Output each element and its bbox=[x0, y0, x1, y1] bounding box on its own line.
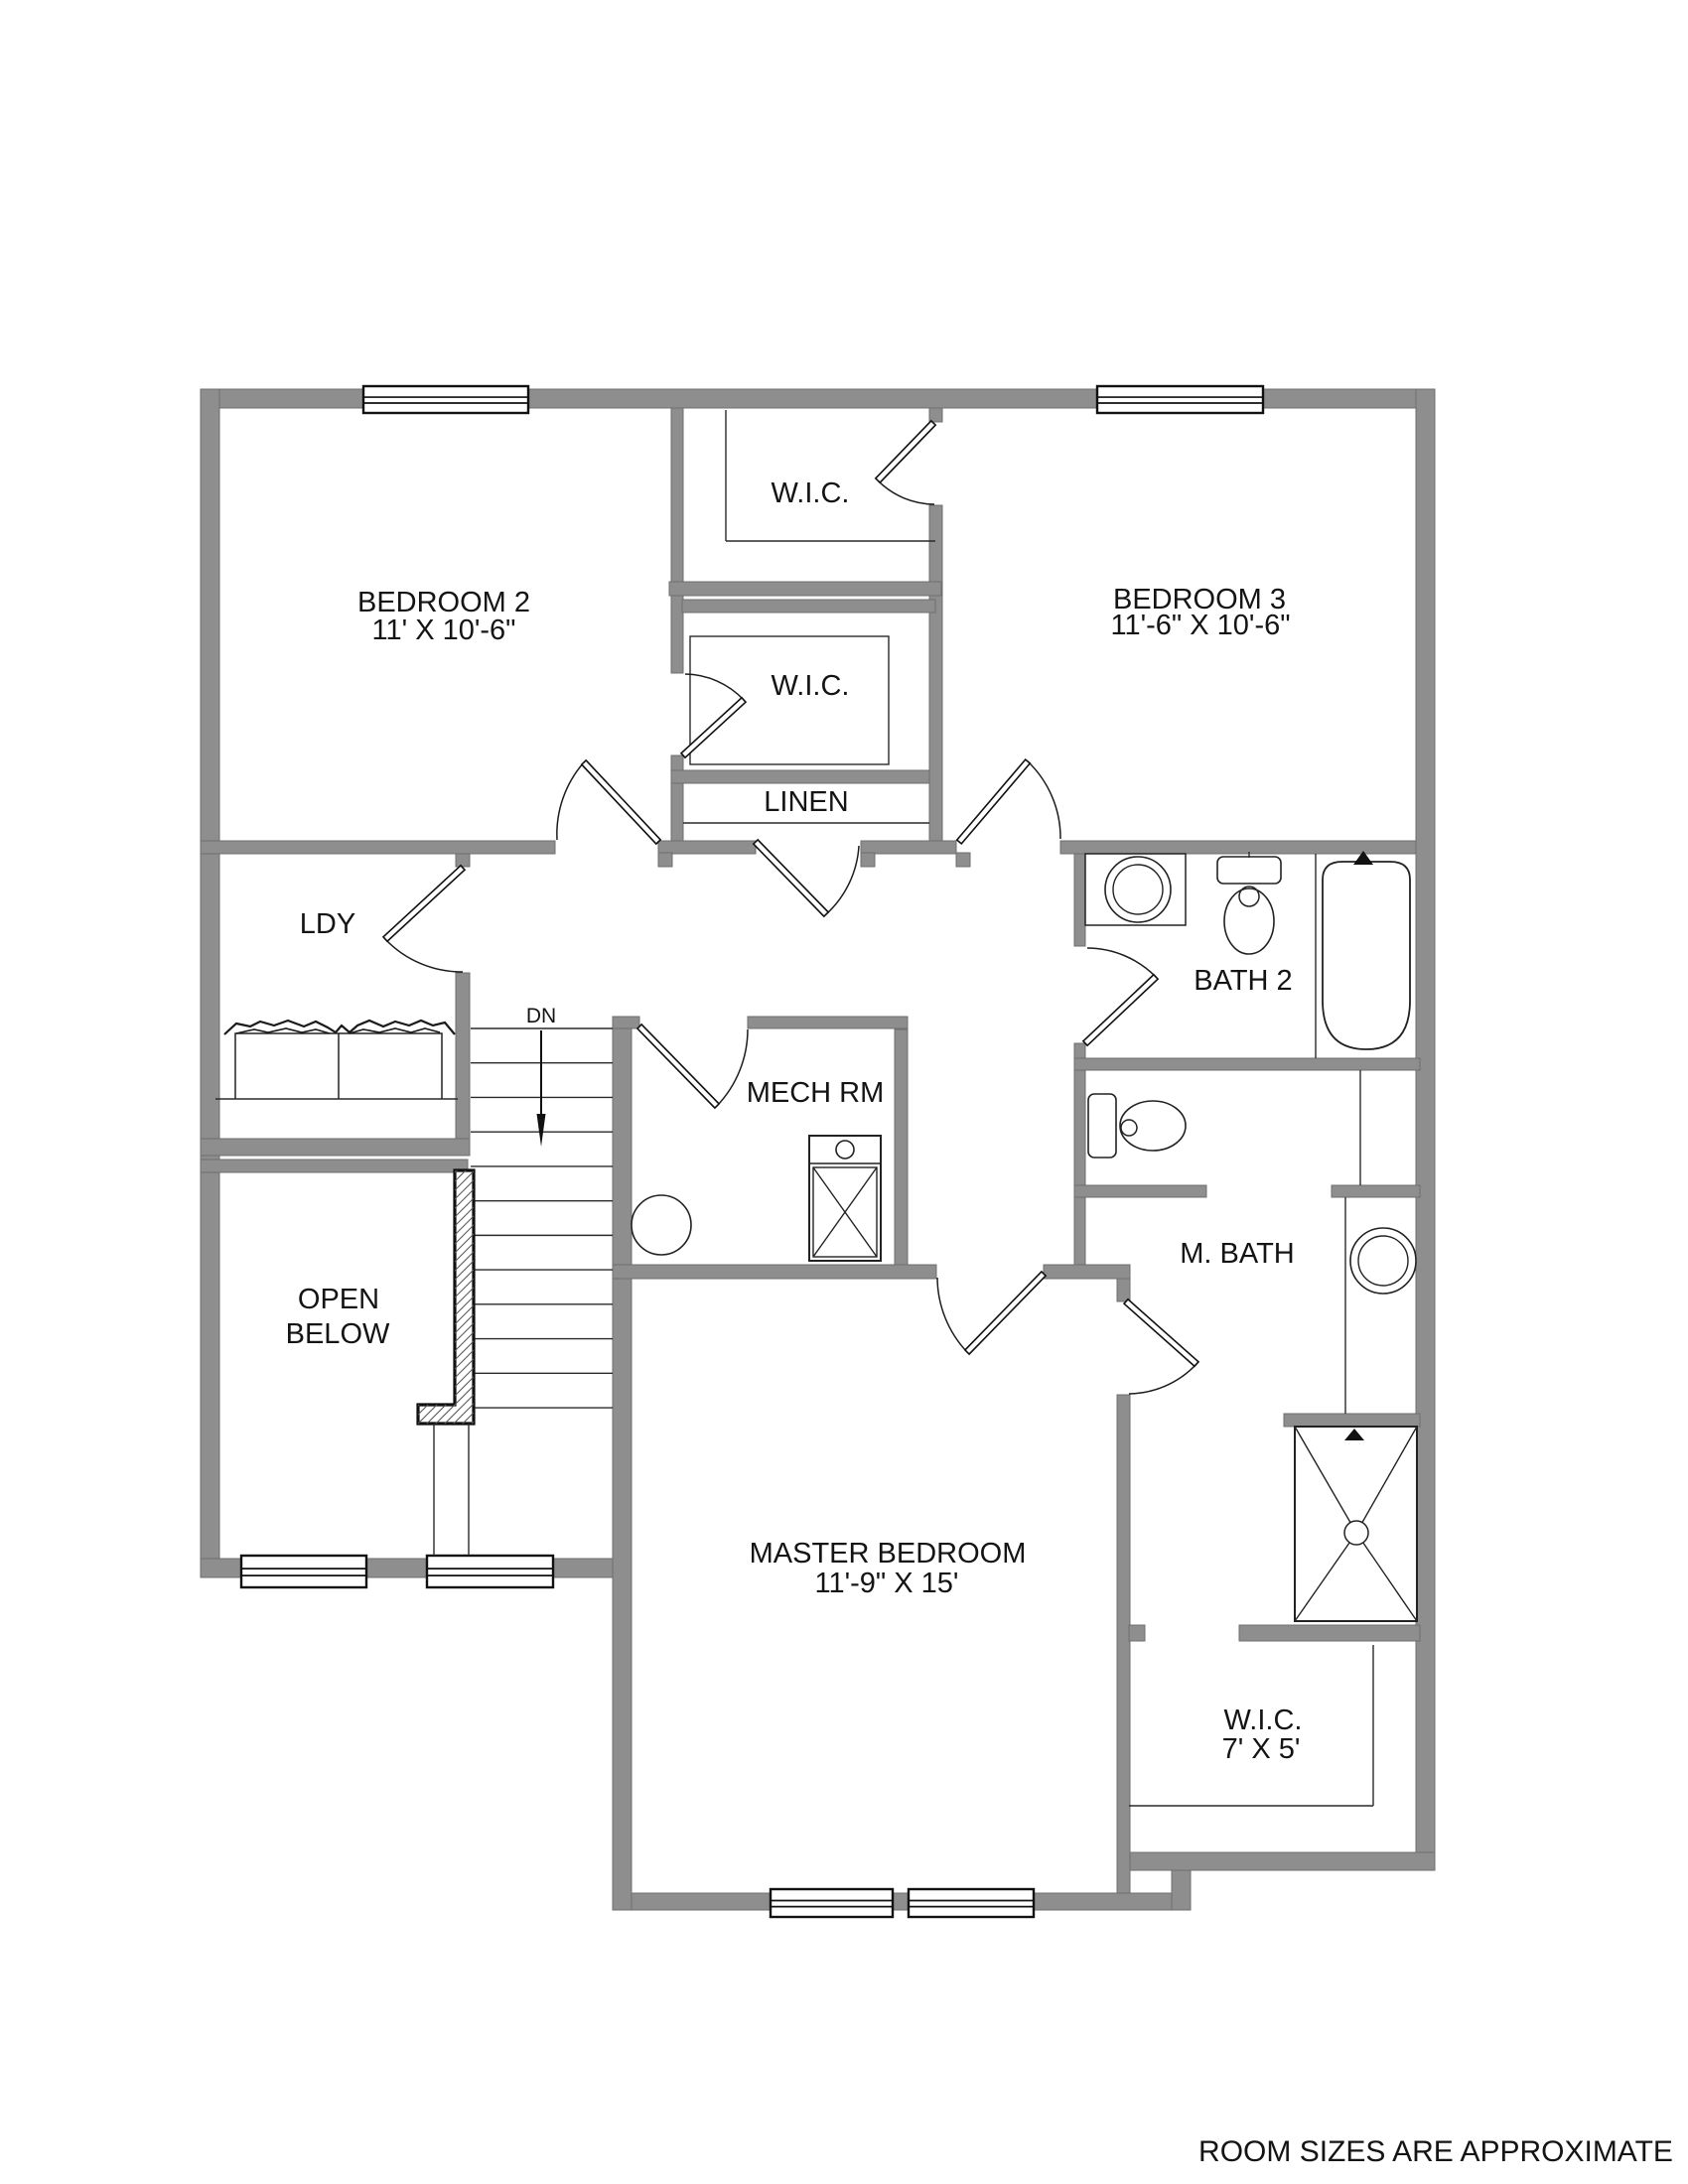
svg-text:BATH 2: BATH 2 bbox=[1194, 965, 1292, 997]
svg-text:11'-9" X 15': 11'-9" X 15' bbox=[815, 1568, 959, 1599]
svg-text:DN: DN bbox=[526, 1005, 556, 1027]
svg-text:W.I.C.: W.I.C. bbox=[772, 670, 850, 702]
svg-text:W.I.C.: W.I.C. bbox=[1224, 1705, 1303, 1736]
svg-text:7' X 5': 7' X 5' bbox=[1222, 1733, 1301, 1765]
svg-text:11'-6" X 10'-6": 11'-6" X 10'-6" bbox=[1110, 610, 1290, 641]
svg-text:M. BATH: M. BATH bbox=[1180, 1238, 1294, 1270]
svg-text:OPEN: OPEN bbox=[298, 1284, 379, 1315]
svg-text:MASTER BEDROOM: MASTER BEDROOM bbox=[750, 1538, 1027, 1570]
svg-text:MECH RM: MECH RM bbox=[747, 1077, 885, 1109]
svg-text:LINEN: LINEN bbox=[764, 786, 848, 818]
svg-text:BELOW: BELOW bbox=[286, 1318, 390, 1350]
svg-text:W.I.C.: W.I.C. bbox=[772, 478, 850, 509]
svg-text:ROOM SIZES ARE APPROXIMATE: ROOM SIZES ARE APPROXIMATE bbox=[1198, 2135, 1673, 2168]
svg-text:11' X 10'-6": 11' X 10'-6" bbox=[372, 614, 516, 646]
svg-text:LDY: LDY bbox=[300, 908, 355, 940]
